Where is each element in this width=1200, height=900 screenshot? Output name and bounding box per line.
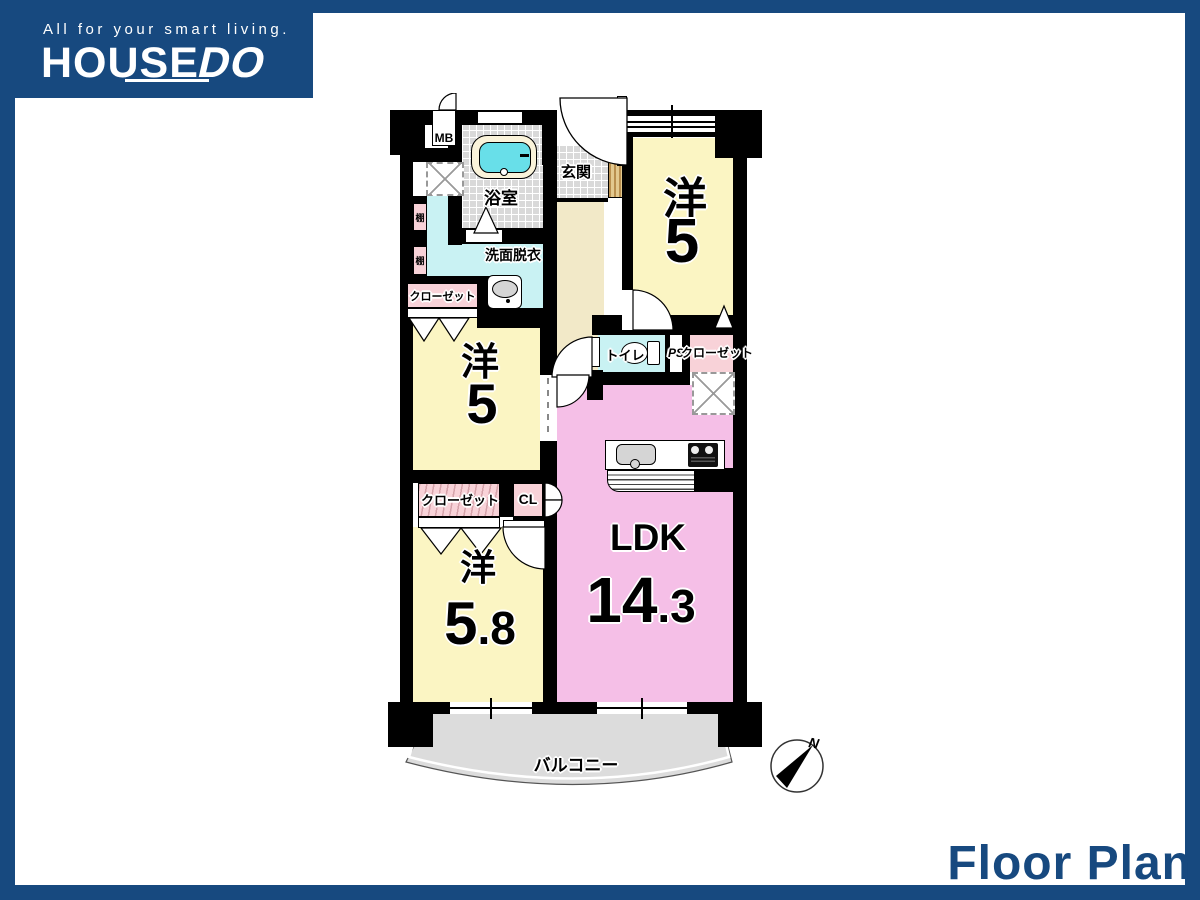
kitchen-faucet (630, 459, 640, 469)
shelf: 棚 (413, 203, 427, 231)
size-frac: .3 (657, 580, 695, 632)
washroom-label: 洗面脱衣 (473, 245, 553, 265)
wall-segment (413, 148, 462, 162)
meter-box-door-swing (439, 93, 456, 110)
kitchen-counter (605, 440, 725, 470)
refrigerator-space (692, 372, 735, 415)
shelf-label: 棚 (414, 213, 427, 222)
ldk-name: LDK (573, 517, 723, 559)
compass-north-label: N (807, 734, 821, 752)
brand-tagline: All for your smart living. (43, 21, 290, 38)
stove-burner (691, 446, 699, 454)
size-frac: .8 (478, 602, 516, 654)
compass: N (766, 732, 832, 798)
closet-washroom-label: クローゼット (406, 288, 479, 304)
page: { "brand": { "tagline": "All for your sm… (0, 0, 1200, 900)
frame-left (0, 0, 15, 900)
stove-grill (691, 457, 715, 464)
washbasin (487, 275, 522, 309)
western-mid-size: 5 (452, 371, 512, 436)
western-bottom-type: 洋 (448, 539, 508, 591)
cl-label: CL (513, 491, 543, 507)
washbasin-drain (506, 299, 510, 303)
washbasin-bowl (492, 280, 518, 298)
wall-corner-block (388, 702, 433, 747)
frame-right (1185, 0, 1200, 900)
wall-segment (695, 468, 735, 492)
wall-corner-block (715, 110, 762, 158)
western-bottom-size: 5.8 (418, 589, 542, 658)
ldk-size: 14.3 (556, 563, 726, 637)
stove-burner (705, 446, 713, 454)
closet-bifold-track (418, 517, 500, 528)
wall-corner-block (718, 702, 762, 747)
closet-ps-label: クローゼット (681, 344, 743, 361)
bathroom-door-gap (466, 230, 502, 242)
balcony-label: バルコニー (521, 751, 631, 776)
wall-segment (592, 315, 733, 335)
brand-underline (125, 79, 209, 82)
size-int: 14 (586, 564, 657, 636)
window-tick (671, 105, 673, 138)
western-top-size: 5 (652, 206, 712, 277)
toilet-label: トイレ (600, 345, 650, 364)
wall-segment (407, 276, 480, 283)
shelf-label: 棚 (414, 256, 427, 265)
meter-box: MB (432, 110, 456, 146)
bathtub (471, 135, 537, 179)
wall-segment (587, 370, 603, 400)
western-top-door-gap (622, 290, 633, 330)
sliding-door-track (547, 378, 549, 438)
wall-segment (405, 470, 545, 483)
wall-segment (500, 483, 513, 517)
washer-space (426, 162, 464, 196)
kitchen-counter-front (607, 470, 695, 492)
wall-right (733, 158, 747, 708)
closet-bottom-label: クローゼット (421, 490, 497, 509)
window-tick (641, 698, 643, 719)
toilet-door-leaf (591, 337, 600, 367)
wall-left (400, 125, 413, 702)
western-bottom-door-leaf (503, 520, 545, 528)
sliding-door-gap (540, 375, 557, 441)
closet-bifold-track (407, 308, 478, 318)
window-tick (490, 698, 492, 719)
wall-segment (413, 231, 427, 246)
frame-top (0, 0, 1200, 13)
shelf: 棚 (413, 246, 427, 275)
kitchen-stove (688, 443, 718, 467)
meter-box-label: MB (435, 131, 454, 145)
floor-plan: MB 棚 棚 (388, 93, 768, 817)
brand-logo: All for your smart living. HOUSEDO (13, 13, 313, 98)
bathtub-drain (500, 168, 508, 176)
bathroom-window (478, 112, 522, 123)
bathroom-label: 浴室 (466, 184, 536, 209)
entrance-door-leaf (617, 96, 627, 166)
wall-segment (592, 372, 690, 385)
bathtub-faucet (520, 154, 529, 157)
page-title: Floor Plan (947, 836, 1192, 891)
entrance-label: 玄関 (554, 161, 598, 182)
size-int: 5 (444, 590, 477, 657)
wall-segment (543, 483, 557, 702)
